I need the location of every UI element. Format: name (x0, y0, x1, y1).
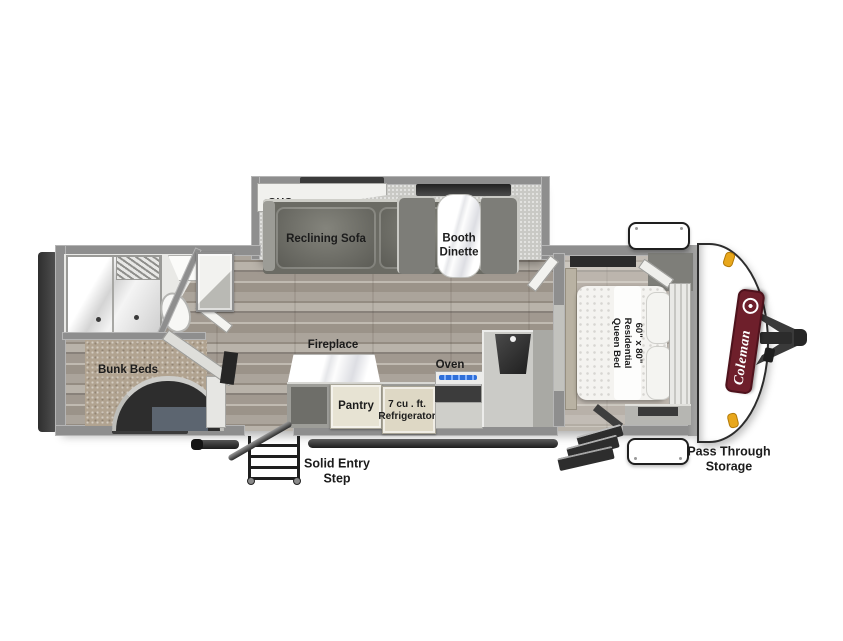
bedroom-bench (625, 404, 691, 425)
lantern-icon (741, 297, 759, 315)
ladder-foot-right (293, 477, 301, 485)
coleman-logo-text: Coleman (731, 329, 755, 386)
shower-drain-left (96, 317, 101, 322)
solid-entry-step-label: Solid Entry Step (304, 456, 370, 486)
hitch-jack (763, 347, 776, 363)
dinette-table (437, 194, 481, 278)
faucet (510, 336, 516, 342)
ladder-foot-left (247, 477, 255, 485)
kitchen-open-shelf (291, 387, 327, 424)
sofa-cushion-left (276, 207, 376, 269)
screw-icon (634, 457, 637, 460)
oven-door (435, 384, 481, 402)
bunkroom-divider-wall (62, 332, 206, 340)
bunk-arch-floor (152, 407, 208, 431)
pass-through-storage-label: Pass Through Storage (687, 444, 770, 474)
screw-icon (635, 227, 638, 230)
kitchen-sink (495, 334, 531, 374)
linen-shelf (116, 256, 160, 280)
bedroom-dresser (565, 268, 577, 410)
bed-center-runner (614, 286, 641, 400)
bedroom-bench-inset (638, 407, 678, 416)
grab-handle (197, 440, 239, 449)
bedroom-tv (570, 256, 636, 267)
dinette-bench-left (397, 196, 435, 274)
hitch-cross-member (760, 332, 792, 344)
wardrobe (196, 252, 234, 312)
cooktop-flames (439, 375, 477, 380)
dinette-bench-right (481, 196, 519, 274)
hitch-coupler (794, 329, 807, 346)
bunk-end-wall (206, 376, 226, 428)
screw-icon (680, 227, 683, 230)
awning-rail (308, 439, 558, 448)
floorplan-canvas: OHC Reclining Sofa Booth Dinette Bunk Be… (0, 0, 843, 641)
range-drawer (435, 402, 483, 429)
pantry (330, 384, 382, 429)
range-cooktop (435, 371, 483, 385)
storage-door-offdoor-side (628, 222, 690, 250)
counter-tall-cabinet (533, 330, 555, 427)
screw-icon (679, 457, 682, 460)
headboard (669, 283, 691, 407)
pass-through-storage-door (627, 438, 689, 465)
refrigerator (382, 386, 436, 434)
shower-glass-divider (112, 257, 114, 334)
bedroom-partition-opening (554, 305, 564, 391)
sofa-armrest-left (263, 201, 275, 271)
shower-drain-right (134, 315, 139, 320)
grab-handle-cap (191, 439, 203, 450)
